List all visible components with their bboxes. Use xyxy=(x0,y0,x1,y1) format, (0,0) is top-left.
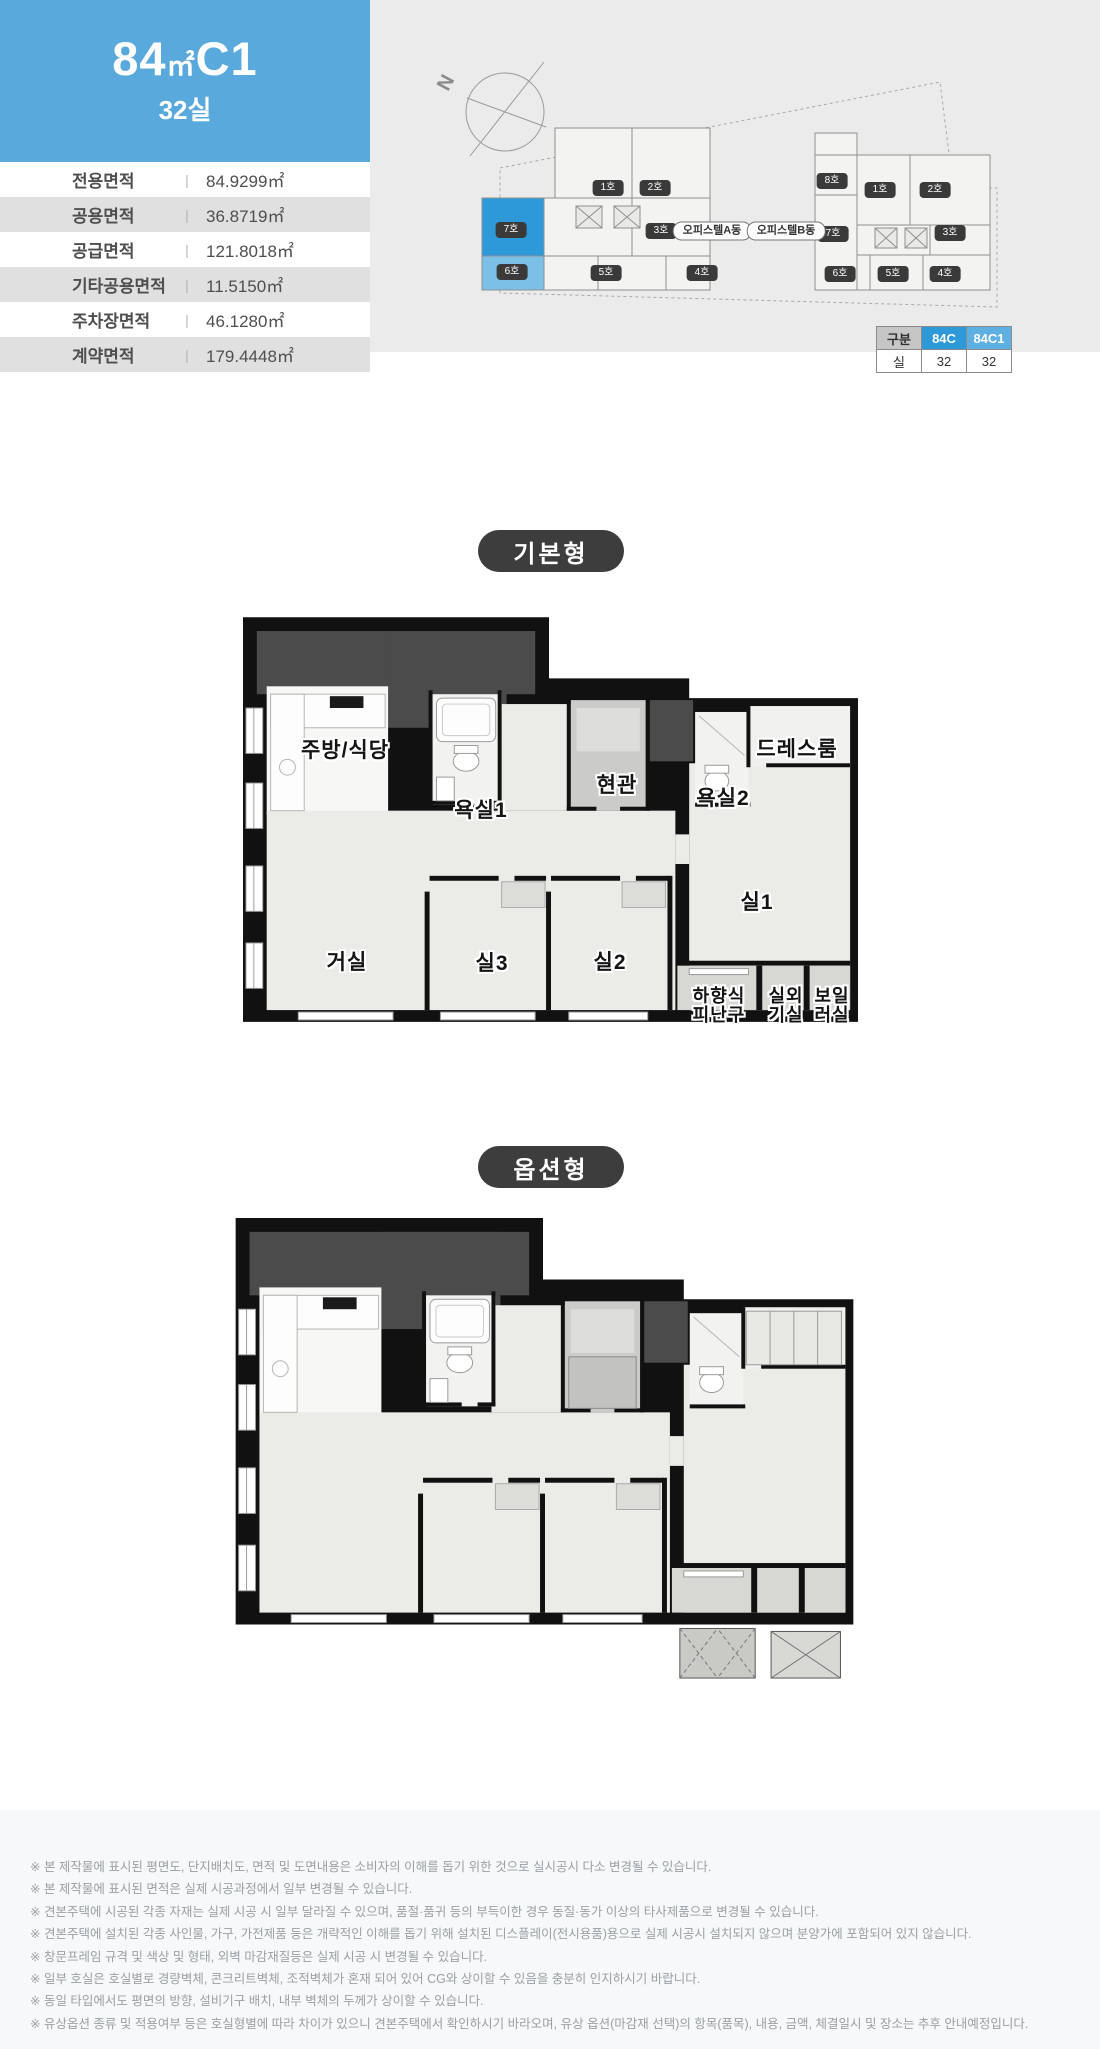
type-table-84c: 84C xyxy=(922,327,967,350)
unit-label: 1호 xyxy=(865,182,896,198)
brochure-page: 84㎡C1 32실 전용면적|84.9299㎡ 공용면적|36.8719㎡ 공급… xyxy=(0,0,1100,2049)
disclaimer-section: ※ 본 제작물에 표시된 평면도, 단지배치도, 면적 및 도면내용은 소비자의… xyxy=(0,1810,1100,2049)
spec-row: 공급면적|121.8018㎡ xyxy=(0,232,370,267)
title-type: C1 xyxy=(196,32,258,85)
disclaimer-line: ※ 본 제작물에 표시된 면적은 실제 시공과정에서 일부 변경될 수 있습니다… xyxy=(30,1878,1080,1900)
unit-label: 1호 xyxy=(593,180,624,196)
spec-separator: | xyxy=(168,277,206,293)
basic-type-badge: 기본형 xyxy=(478,530,624,572)
unit-label: 5호 xyxy=(591,265,622,281)
spec-separator: | xyxy=(168,207,206,223)
spec-label: 기타공용면적 xyxy=(72,272,168,297)
type-table-header: 구분 xyxy=(877,327,922,350)
unit-count-table: 구분 84C 84C1 실 32 32 xyxy=(876,326,1012,373)
title-unit: ㎡ xyxy=(167,50,196,81)
spec-label: 전용면적 xyxy=(72,167,168,192)
room-label-dressroom: 드레스룸 xyxy=(756,739,837,761)
building-b-label: 오피스텔B동 xyxy=(747,222,826,241)
north-compass-icon xyxy=(466,62,546,156)
page-title: 84㎡C1 xyxy=(112,35,257,82)
room-label-living: 거실 xyxy=(327,952,368,974)
spec-separator: | xyxy=(168,242,206,258)
spec-label: 공용면적 xyxy=(72,202,168,227)
disclaimer-line: ※ 유상옵션 종류 및 적용여부 등은 호실형별에 따라 차이가 있으니 견본주… xyxy=(30,2013,1080,2035)
unit-label: 2호 xyxy=(920,182,951,198)
disclaimer-line: ※ 본 제작물에 표시된 평면도, 단지배치도, 면적 및 도면내용은 소비자의… xyxy=(30,1856,1080,1878)
spec-separator: | xyxy=(168,312,206,328)
room-label-kitchen: 주방/식당 xyxy=(301,740,389,762)
spec-label: 주차장면적 xyxy=(72,307,168,332)
type-table-row-label: 실 xyxy=(877,350,922,373)
room-label-room3: 실3 xyxy=(476,953,509,975)
spec-row: 계약면적|179.4448㎡ xyxy=(0,337,370,372)
north-label: N xyxy=(433,71,459,94)
spec-value: 121.8018㎡ xyxy=(206,237,370,262)
unit-label: 4호 xyxy=(687,265,718,281)
room-label-bath2: 욕실2 xyxy=(696,788,749,810)
room-label-ac-unit-room: 실외 기실 xyxy=(768,987,803,1025)
disclaimer-line: ※ 견본주택에 시공된 각종 자재는 실제 시공 시 일부 달라질 수 있으며,… xyxy=(30,1901,1080,1923)
site-plan-drawing: N xyxy=(370,0,1100,352)
room-count: 32실 xyxy=(159,90,212,127)
unit-label: 6호 xyxy=(497,264,528,280)
spec-label: 공급면적 xyxy=(72,237,168,262)
type-table-84c1: 84C1 xyxy=(967,327,1012,350)
spec-separator: | xyxy=(168,347,206,363)
spec-value: 179.4448㎡ xyxy=(206,342,370,367)
disclaimer-line: ※ 일부 호실은 호실별로 경량벽체, 콘크리트벽체, 조적벽체가 혼재 되어 … xyxy=(30,1968,1080,1990)
spec-value: 84.9299㎡ xyxy=(206,167,370,192)
title-area: 84 xyxy=(112,32,166,85)
spec-label: 계약면적 xyxy=(72,342,168,367)
unit-label: 7호 xyxy=(496,222,527,238)
unit-label: 6호 xyxy=(825,266,856,282)
disclaimer-line: ※ 창문프레임 규격 및 색상 및 형태, 외벽 마감재질등은 실제 시공 시 … xyxy=(30,1946,1080,1968)
room-label-room2: 실2 xyxy=(594,952,627,974)
unit-label: 3호 xyxy=(935,225,966,241)
site-plan-panel: N xyxy=(370,0,1100,352)
room-label-entry: 현관 xyxy=(597,775,638,797)
disclaimer-line: ※ 동일 타입에서도 평면의 방향, 설비기구 배치, 내부 벽체의 두께가 상… xyxy=(30,1990,1080,2012)
floorplan-option xyxy=(233,1218,856,1684)
spec-row: 주차장면적|46.1280㎡ xyxy=(0,302,370,337)
unit-label: 8호 xyxy=(817,173,848,189)
disclaimer-line: ※ 견본주택에 설치된 각종 사인물, 가구, 가전제품 등은 개략적인 이해를… xyxy=(30,1923,1080,1945)
spec-row: 공용면적|36.8719㎡ xyxy=(0,197,370,232)
spec-value: 36.8719㎡ xyxy=(206,202,370,227)
spec-row: 기타공용면적|11.5150㎡ xyxy=(0,267,370,302)
room-label-escape-hatch: 하향식 피난구 xyxy=(693,987,746,1025)
type-table-count: 32 xyxy=(922,350,967,373)
spec-value: 46.1280㎡ xyxy=(206,307,370,332)
spec-separator: | xyxy=(168,172,206,188)
unit-type-header: 84㎡C1 32실 xyxy=(0,0,370,162)
room-label-bath1: 욕실1 xyxy=(454,800,507,822)
area-spec-table: 전용면적|84.9299㎡ 공용면적|36.8719㎡ 공급면적|121.801… xyxy=(0,162,370,372)
building-a-label: 오피스텔A동 xyxy=(673,222,752,241)
spec-value: 11.5150㎡ xyxy=(206,272,370,297)
type-table-count: 32 xyxy=(967,350,1012,373)
option-type-badge: 옵션형 xyxy=(478,1146,624,1188)
room-label-room1: 실1 xyxy=(741,892,774,914)
unit-label: 4호 xyxy=(930,266,961,282)
unit-label: 5호 xyxy=(878,266,909,282)
spec-row: 전용면적|84.9299㎡ xyxy=(0,162,370,197)
unit-label: 2호 xyxy=(640,180,671,196)
room-label-boiler-room: 보일 러실 xyxy=(814,987,849,1025)
